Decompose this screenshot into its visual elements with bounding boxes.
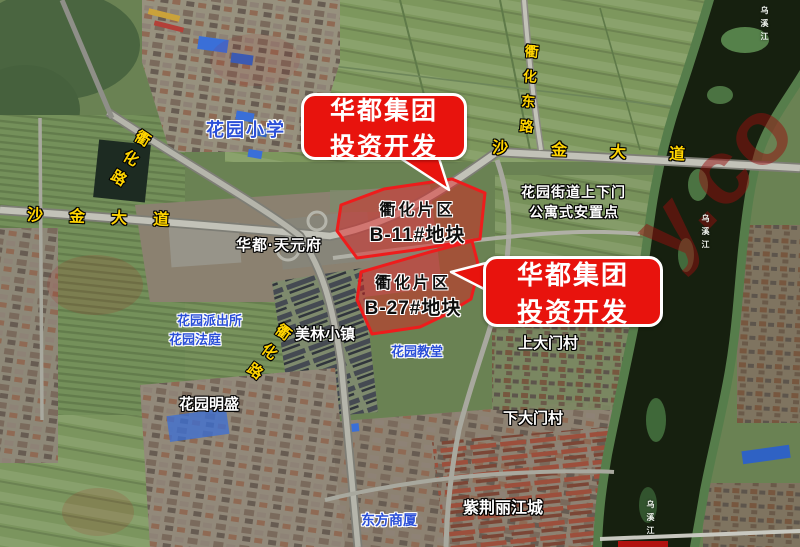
place-label-huayuan-church: 花园教堂 xyxy=(391,345,443,359)
place-label-xiadamen-village: 下大门村 xyxy=(503,411,563,427)
place-label-zijin-lijiang-city: 紫荆丽江城 xyxy=(463,501,543,518)
callout-b27-line2: 投资开发 xyxy=(486,292,660,329)
plot-b11-label-line1: 衢化片区 xyxy=(340,196,495,220)
place-label-resettlement-line2: 公寓式安置点 xyxy=(529,205,619,220)
callout-b11-line1: 华都集团 xyxy=(304,91,464,127)
river-label-wuxijiang-bottom: 乌溪江 xyxy=(645,500,656,539)
river-label-wuxijiang-top: 乌溪江 xyxy=(759,6,770,45)
callout-b11-bubble: 华都集团 投资开发 xyxy=(301,93,467,160)
plot-b11-label-line2: B-11#地块 xyxy=(340,220,495,247)
callout-b27-line1: 华都集团 xyxy=(486,255,660,292)
place-label-huayuan-court: 花园法庭 xyxy=(169,333,221,347)
satellite-map-image: y.co 华都集团 投资开发 华都集团 投资开发 衢化片区 B-11#地块 衢化… xyxy=(0,0,800,547)
place-label-huayuan-primary-school: 花园小学 xyxy=(206,121,286,140)
plot-b11-label: 衢化片区 B-11#地块 xyxy=(340,196,495,247)
place-label-shangdamen-village: 上大门村 xyxy=(518,336,578,352)
place-label-meilin-town: 美林小镇 xyxy=(295,327,355,343)
place-label-huayuan-police-station: 花园派出所 xyxy=(177,314,242,328)
river-label-wuxijiang-mid: 乌溪江 xyxy=(700,214,711,253)
callout-b27-bubble: 华都集团 投资开发 xyxy=(483,256,663,327)
callout-b11-line2: 投资开发 xyxy=(304,127,464,163)
plot-b27-label: 衢化片区 B-27#地块 xyxy=(337,269,489,320)
place-label-dongfang-shangsha: 东方商厦 xyxy=(361,513,417,528)
plot-b27-label-line1: 衢化片区 xyxy=(337,269,489,293)
place-label-huayuan-mingsheng: 花园明盛 xyxy=(179,397,239,413)
plot-b27-label-line2: B-27#地块 xyxy=(337,293,489,320)
place-label-resettlement-line1: 花园街道上下门 xyxy=(521,185,626,200)
place-label-huadu-tianyuanfu: 华都·天元府 xyxy=(236,238,322,254)
